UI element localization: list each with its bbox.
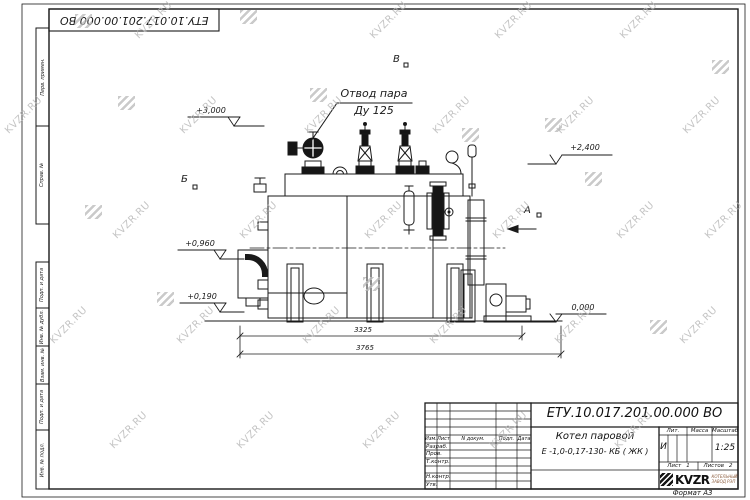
row-tkontr: Т.контр. bbox=[426, 460, 450, 466]
drawing-sheet: ЕТУ.10.017.201.00.000 ВО Перв. примен. С… bbox=[0, 0, 750, 500]
dimension-boiler-length: 3325 bbox=[338, 327, 388, 334]
margin-box-inv-dubl: Инв. № дубл. bbox=[36, 308, 49, 346]
elevation-2400: +2,400 bbox=[560, 144, 610, 152]
kvzr-logo-icon bbox=[660, 473, 673, 486]
sheet-label: Лист bbox=[667, 464, 681, 470]
elevation-0190: +0,190 bbox=[178, 293, 226, 301]
margin-box-vzam-inv: Взам. инв. № bbox=[36, 346, 49, 384]
elevation-0000: 0,000 bbox=[560, 304, 606, 312]
view-label-b: Б bbox=[181, 175, 188, 185]
sheets-value: 2 bbox=[729, 464, 733, 470]
safety-valve bbox=[356, 123, 374, 175]
margin-box-podp-data-2: Подп. и дата bbox=[36, 384, 49, 430]
row-utv: Утв. bbox=[426, 483, 438, 489]
safety-valve bbox=[396, 123, 414, 175]
sheets-cell: Листов 2 bbox=[698, 464, 738, 470]
margin-box-sprav-no: Справ. № bbox=[36, 126, 49, 224]
flue-and-fan bbox=[461, 200, 531, 322]
company-tagline: КОТЕЛЬНЫЙ ЗАВОД РЭП bbox=[712, 475, 738, 484]
margin-box-perv-primen: Перв. примен. bbox=[36, 28, 49, 126]
mass-label: Масса bbox=[687, 429, 712, 435]
water-level-gauges bbox=[404, 182, 449, 240]
dimension-overall-length: 3765 bbox=[340, 345, 390, 352]
sheets-label: Листов bbox=[703, 464, 724, 470]
manhole bbox=[304, 288, 324, 304]
title-block-designation: ЕТУ.10.017.201.00.000 ВО bbox=[531, 407, 738, 420]
elevation-0960: +0,960 bbox=[176, 240, 224, 248]
view-label-a: А bbox=[524, 206, 531, 216]
sheet-frame bbox=[22, 4, 745, 497]
elevation-marks bbox=[178, 117, 612, 322]
elevation-3000: +3,000 bbox=[186, 107, 236, 115]
product-name-line1: Котел паровой bbox=[531, 432, 659, 442]
scale-value: 1:25 bbox=[712, 444, 738, 453]
row-razrab: Разраб. bbox=[426, 445, 448, 451]
steam-outlet-label-line1: Отвод пара bbox=[336, 88, 412, 99]
lit-value: И bbox=[659, 443, 668, 452]
view-label-v: В bbox=[393, 55, 400, 65]
lit-label: Лит. bbox=[659, 429, 687, 435]
corner-stamp: ЕТУ.10.017.201.00.000 ВО bbox=[49, 9, 219, 31]
col-podp: Подп. bbox=[496, 437, 517, 442]
dimension-lines bbox=[237, 326, 564, 358]
margin-box-inv-podl: Инв. № подл. bbox=[36, 430, 49, 489]
format-note: Формат А3 bbox=[650, 490, 735, 497]
company-name: KVZR bbox=[675, 473, 710, 487]
product-name-line2: Е -1,0-0,17-130- КБ ( ЖК ) bbox=[531, 448, 659, 456]
col-ndokum: N докум. bbox=[450, 437, 496, 442]
sheet-value: 1 bbox=[686, 464, 690, 470]
company-cell: KVZR КОТЕЛЬНЫЙ ЗАВОД РЭП bbox=[660, 471, 737, 488]
front-fittings bbox=[254, 178, 268, 309]
burner bbox=[238, 250, 268, 306]
sheet-cell: Лист 1 bbox=[659, 464, 698, 470]
corner-stamp-designation: ЕТУ.10.017.201.00.000 ВО bbox=[60, 14, 209, 27]
col-list: Лист bbox=[437, 437, 450, 442]
drawing-geometry bbox=[0, 0, 750, 500]
steam-valve bbox=[288, 132, 324, 174]
row-nkontr: Н.контр. bbox=[426, 475, 451, 481]
scale-label: Масштаб bbox=[712, 429, 738, 435]
col-data: Дата bbox=[517, 437, 531, 442]
boiler-body bbox=[250, 174, 505, 318]
row-prov: Пров. bbox=[426, 452, 442, 458]
steam-outlet-label-line2: Ду 125 bbox=[344, 105, 404, 116]
col-izm: Изм. bbox=[425, 437, 437, 442]
margin-box-podp-data-1: Подп. и дата bbox=[36, 262, 49, 308]
